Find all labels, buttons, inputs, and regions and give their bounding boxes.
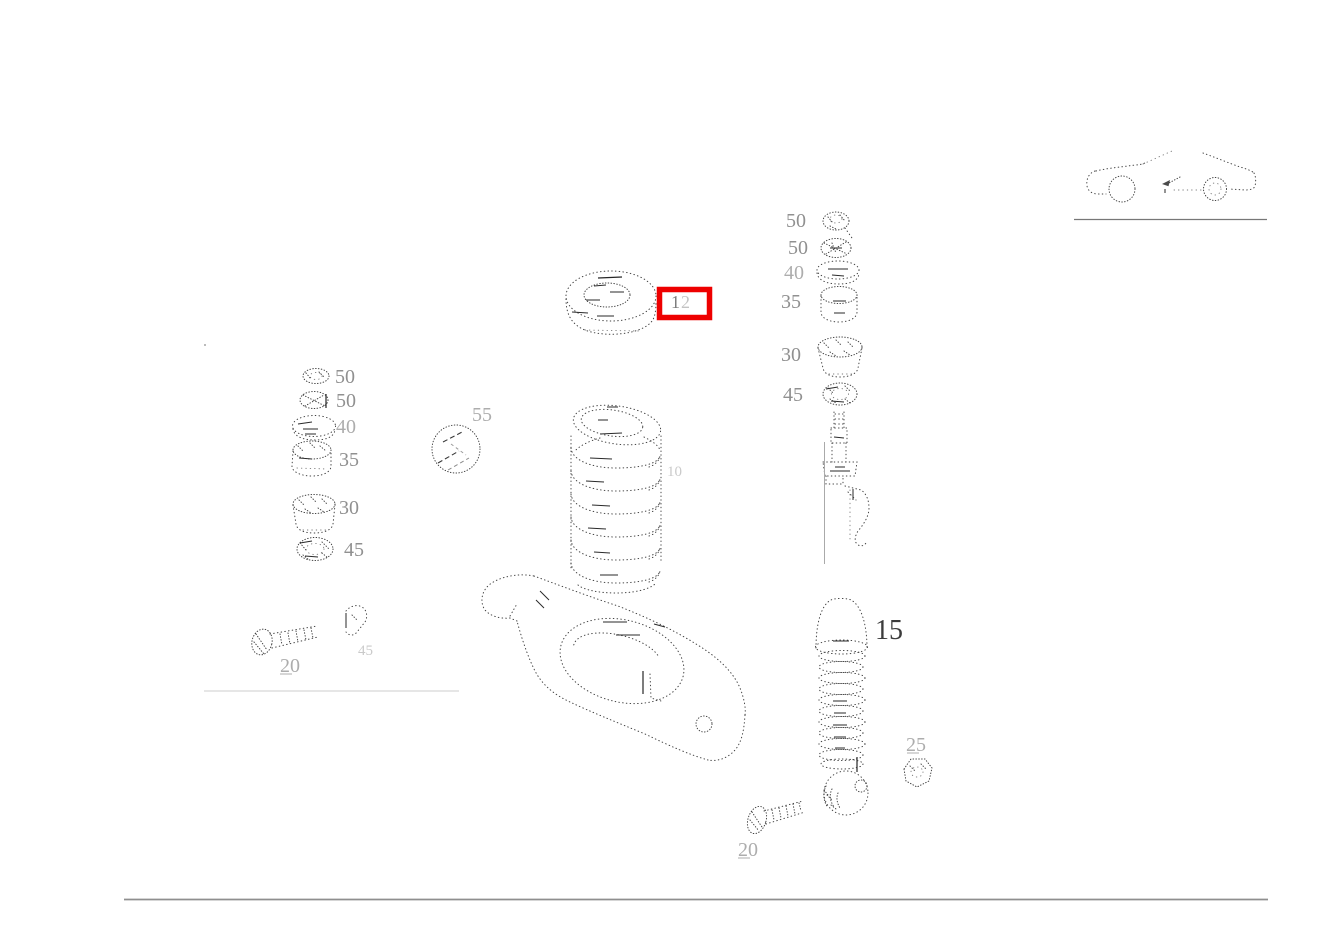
svg-text:50: 50 [335,366,355,388]
svg-text:50: 50 [786,210,806,232]
svg-text:50: 50 [336,390,356,412]
svg-text:40: 40 [784,262,804,284]
svg-text:45: 45 [344,539,364,561]
svg-text:10: 10 [667,464,682,480]
svg-text:2: 2 [681,292,690,312]
svg-text:30: 30 [339,497,359,519]
svg-text:50: 50 [788,237,808,259]
svg-text:45: 45 [358,643,373,659]
svg-text:45: 45 [783,384,803,406]
svg-text:15: 15 [875,615,903,646]
svg-text:40: 40 [336,416,356,438]
svg-text:1: 1 [671,292,680,312]
svg-text:30: 30 [781,344,801,366]
svg-text:35: 35 [781,291,801,313]
svg-text:35: 35 [339,449,359,471]
svg-text:55: 55 [472,404,492,426]
